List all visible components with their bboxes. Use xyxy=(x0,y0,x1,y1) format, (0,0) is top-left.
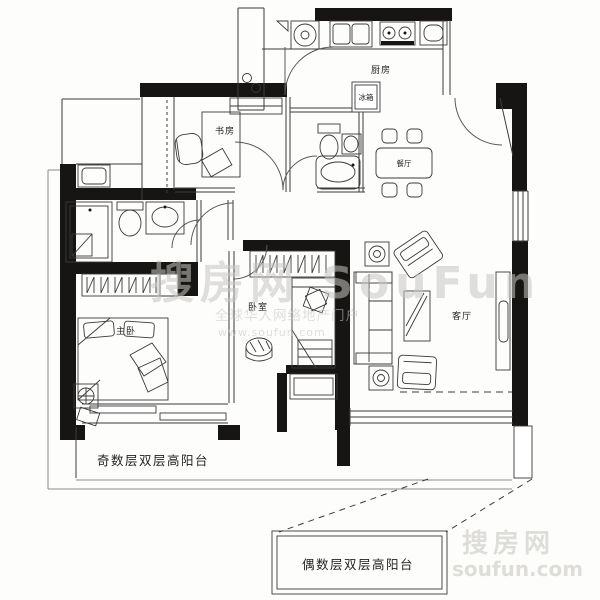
right-bay-window xyxy=(513,191,528,241)
wall-center-lower xyxy=(337,430,350,466)
kitchen-label: 厨房 xyxy=(371,64,391,76)
dining-chair-icon xyxy=(407,183,422,197)
dining-chair-icon xyxy=(407,129,422,143)
burner-left-dot xyxy=(388,32,391,35)
watermark-tagline: 全球华人网络地产门户 xyxy=(215,307,360,324)
master-washbasin-bowl-icon xyxy=(152,207,178,227)
study-door-arc xyxy=(235,142,283,190)
master-toilet-tank-icon xyxy=(117,202,143,210)
floor-plan-drawing: 厨房 冰箱 书房 餐厅 主卧 卧室 客厅 奇数层双层高阳台 偶数层双层高阳台 搜… xyxy=(0,0,600,600)
bathtub-icon xyxy=(316,156,360,189)
dining-label: 餐厅 xyxy=(397,159,412,168)
wall-study-top xyxy=(140,83,287,97)
even-balcony-label: 偶数层双层高阳台 xyxy=(302,557,414,572)
sliding-panel-1 xyxy=(90,406,156,413)
bedroom2-bay-window-inner xyxy=(294,378,333,395)
floor-plan-page: 厨房 冰箱 书房 餐厅 主卧 卧室 客厅 奇数层双层高阳台 偶数层双层高阳台 搜… xyxy=(0,0,600,600)
toilet-bowl-icon xyxy=(320,135,338,159)
desk-icon xyxy=(202,112,240,177)
desk-chair-icon xyxy=(174,132,204,165)
bed-fold-lines xyxy=(78,318,110,400)
armchair-icon xyxy=(397,355,437,390)
burner-right-dot xyxy=(404,32,407,35)
wall-bedroom2-bottom-left xyxy=(277,373,287,432)
odd-balcony-label: 奇数层双层高阳台 xyxy=(97,453,209,468)
wardrobe-hanger-hatch xyxy=(87,277,156,293)
toilet-tank-icon xyxy=(318,124,340,133)
wall-balcony-block-left xyxy=(60,425,85,440)
washing-machine-hub-icon xyxy=(301,31,309,39)
quilt-lines xyxy=(298,349,332,357)
sink-counter-icon xyxy=(330,21,372,47)
balcony-projection-dashed xyxy=(279,479,532,532)
dining-chair-icon xyxy=(382,129,397,143)
kitchen-cabinet-inner xyxy=(424,25,443,41)
study-label: 书房 xyxy=(215,125,235,137)
living-room-furniture xyxy=(354,230,512,392)
sofa-armrest-bottom xyxy=(356,353,392,364)
stool-hatch xyxy=(250,340,270,352)
watermark-corner-brand: 搜房网 xyxy=(462,529,555,559)
speaker-ring-inner xyxy=(378,375,385,382)
sink-basin-right-icon xyxy=(352,24,369,44)
bathroom-top-fixtures xyxy=(316,124,361,189)
entry-door-arc xyxy=(455,98,502,145)
stove-base xyxy=(381,41,414,45)
sink-basin-left-icon xyxy=(333,24,350,44)
pillar xyxy=(514,426,532,478)
master-toilet-bowl-icon xyxy=(119,210,141,236)
shower-head-dot xyxy=(89,209,92,212)
watermark-corner-url: soufun.com xyxy=(452,557,583,581)
dining-chair-icon xyxy=(382,183,397,197)
master-bathroom-fixtures xyxy=(66,165,184,262)
bathtub-inner-icon xyxy=(321,162,355,182)
living-room-label: 客厅 xyxy=(452,310,472,322)
wall-kitchen-top xyxy=(315,8,452,21)
watermark-brand: 搜房网 SouFun xyxy=(150,258,541,309)
armchair-seat-line xyxy=(404,361,432,362)
living-room-window xyxy=(350,408,513,426)
armchair-cushion xyxy=(402,372,431,384)
washing-machine-drum-icon xyxy=(294,24,316,46)
study-furniture xyxy=(174,98,282,177)
speaker-ring xyxy=(373,370,389,386)
quilt-icon xyxy=(298,340,332,366)
stool-base xyxy=(246,347,272,361)
master-washbasin-tap-dot xyxy=(164,206,167,209)
pillow-icon xyxy=(83,321,114,339)
kitchen-door-arc xyxy=(285,47,333,95)
counter-corner-icon xyxy=(277,21,288,31)
wall-bedroom2-top xyxy=(243,240,343,251)
washbasin-bowl-icon xyxy=(344,136,358,152)
wall-bath-top xyxy=(60,188,196,200)
watermark-url: www.soufun.com xyxy=(218,326,326,339)
sliding-panel-2 xyxy=(160,413,226,420)
washing-machine-icon xyxy=(291,21,319,49)
utility-appliance-inner xyxy=(82,168,106,184)
speaker-ring-inner xyxy=(374,251,381,258)
stool-icon xyxy=(246,338,272,356)
wall-balcony-block-mid xyxy=(218,425,240,440)
wall-right-upper xyxy=(512,109,527,191)
gas-meter-icon-1 xyxy=(243,74,252,83)
wall-entry-corner xyxy=(496,83,527,109)
master-bedroom-label: 主卧 xyxy=(116,325,136,337)
bathroom-door-arc xyxy=(283,156,317,190)
walls xyxy=(60,8,528,466)
fridge-label: 冰箱 xyxy=(359,92,374,102)
desk-paper-icon xyxy=(202,148,232,176)
bathtub-drain-dot xyxy=(352,164,355,167)
